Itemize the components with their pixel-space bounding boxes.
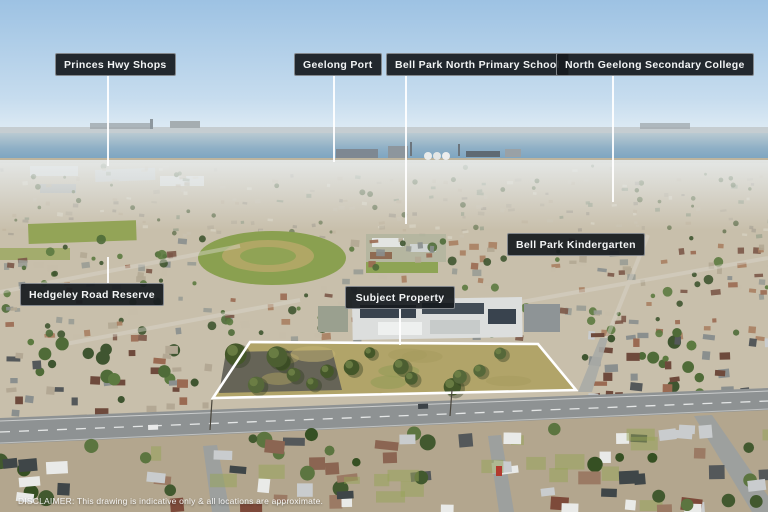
leader-line-bell-park-north-primary-school xyxy=(405,76,407,224)
leader-line-geelong-port xyxy=(333,76,335,162)
callout-label: Subject Property xyxy=(356,292,445,304)
callout-subject-property: Subject Property xyxy=(345,286,455,309)
callout-bell-park-kindergarten: Bell Park Kindergarten xyxy=(507,233,645,256)
callout-label: Bell Park Kindergarten xyxy=(516,239,636,251)
callout-label: Bell Park North Primary School xyxy=(395,59,560,71)
callout-label: North Geelong Secondary College xyxy=(565,59,745,71)
aerial-callout-image: Princes Hwy ShopsGeelong PortBell Park N… xyxy=(0,0,768,512)
leader-line-hedgeley-road-reserve xyxy=(107,257,109,283)
callout-label: Princes Hwy Shops xyxy=(64,59,167,71)
callout-north-geelong-secondary-college: North Geelong Secondary College xyxy=(556,53,754,76)
callout-bell-park-north-primary-school: Bell Park North Primary School xyxy=(386,53,569,76)
leader-line-princes-hwy-shops xyxy=(107,76,109,166)
leader-line-north-geelong-secondary-college xyxy=(612,76,614,202)
callout-label: Geelong Port xyxy=(303,59,373,71)
leader-line-subject-property xyxy=(399,309,401,345)
callout-geelong-port: Geelong Port xyxy=(294,53,382,76)
callout-label: Hedgeley Road Reserve xyxy=(29,289,155,301)
callout-layer: Princes Hwy ShopsGeelong PortBell Park N… xyxy=(0,0,768,512)
callout-princes-hwy-shops: Princes Hwy Shops xyxy=(55,53,176,76)
disclaimer-text: DISCLAIMER: This drawing is indicative o… xyxy=(18,496,323,506)
callout-hedgeley-road-reserve: Hedgeley Road Reserve xyxy=(20,283,164,306)
